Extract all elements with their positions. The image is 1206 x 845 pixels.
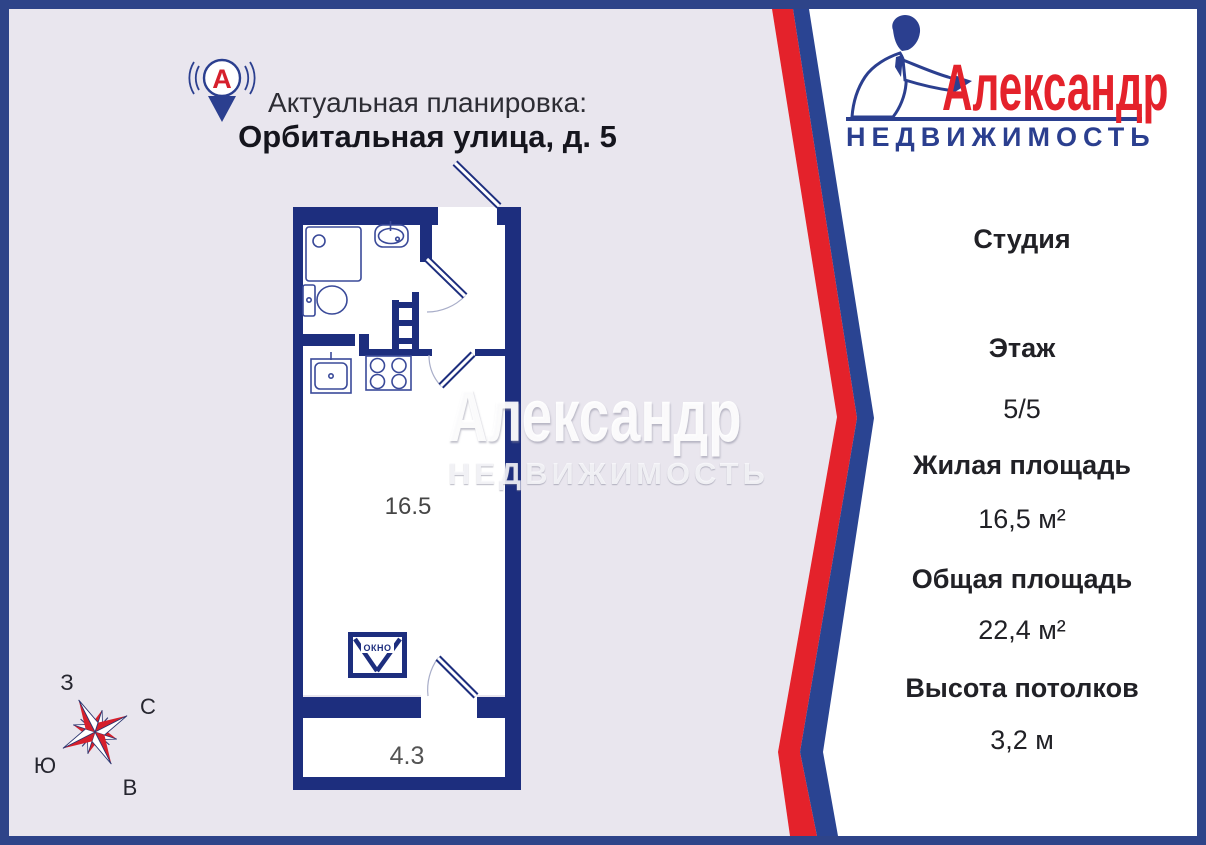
apartment-type: Студия — [862, 224, 1182, 254]
compass-south-label: Ю — [34, 753, 56, 778]
brand-name: Александр — [942, 54, 1168, 124]
bathroom-sink — [375, 221, 408, 247]
brand-tagline: НЕДВИЖИМОСТЬ — [846, 122, 1146, 153]
stove — [366, 356, 411, 390]
shower — [306, 227, 361, 281]
compass-north-label: С — [140, 694, 156, 719]
total-area-label: Общая площадь — [862, 564, 1182, 594]
pin-letter: А — [212, 64, 232, 94]
balcony-area-label: 4.3 — [390, 742, 425, 770]
living-area-label: Жилая площадь — [862, 450, 1182, 480]
compass-west-label: З — [60, 670, 73, 695]
compass-east-label: В — [123, 775, 138, 800]
ceiling-height-value: 3,2 м — [862, 725, 1182, 755]
flyer-address: Орбитальная улица, д. 5 — [230, 120, 625, 154]
total-area-value: 22,4 м² — [862, 615, 1182, 645]
living-area-value: 16,5 м² — [862, 504, 1182, 534]
ceiling-height-label: Высота потолков — [862, 673, 1182, 703]
header: Актуальная планировка: Орбитальная улица… — [230, 88, 625, 154]
real-estate-flyer: окно 16.5 4.3 — [0, 0, 1206, 845]
window-label: окно — [364, 643, 392, 653]
toilet — [303, 285, 347, 316]
floor-value: 5/5 — [862, 394, 1182, 424]
room-area-label: 16.5 — [385, 493, 432, 520]
floor-label: Этаж — [862, 333, 1182, 363]
window-symbol: окно — [348, 632, 407, 678]
flyer-subtitle: Актуальная планировка: — [230, 88, 625, 118]
